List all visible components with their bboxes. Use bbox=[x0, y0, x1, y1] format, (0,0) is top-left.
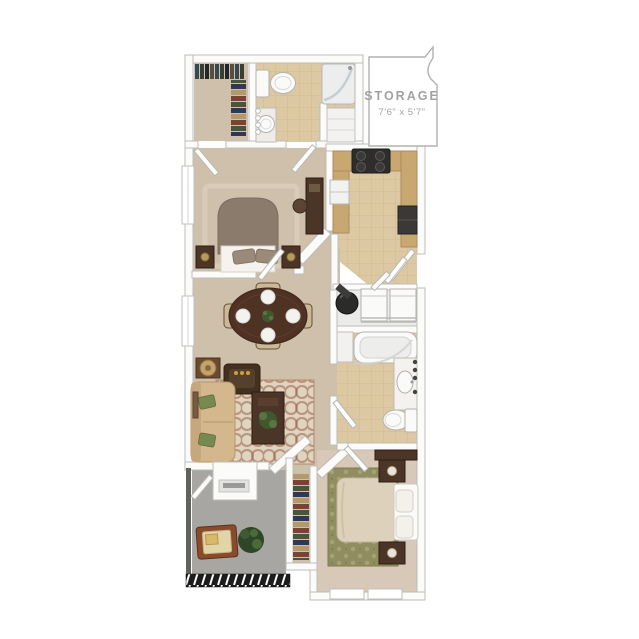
upper-right-wall bbox=[355, 63, 363, 144]
throw-pillow bbox=[198, 433, 216, 448]
entry-hall-wall bbox=[331, 234, 338, 290]
hanging-clothes bbox=[293, 474, 309, 560]
toilet bbox=[271, 73, 296, 94]
lounge-chair bbox=[196, 525, 238, 560]
right-wall-upper bbox=[417, 144, 425, 254]
top-wall bbox=[185, 55, 363, 63]
patio-side-rail bbox=[186, 468, 191, 576]
shower-head bbox=[348, 66, 352, 70]
storage-dimensions: 7'6" x 5'7" bbox=[378, 107, 425, 118]
floor-plan-image: STORAGE 7'6" x 5'7" bbox=[0, 0, 639, 639]
closet-bath-divider-wall bbox=[249, 63, 256, 143]
pillow bbox=[232, 249, 256, 265]
closet-2-bottom-wall bbox=[286, 563, 317, 570]
storage-label: STORAGE bbox=[364, 89, 440, 103]
fireplace bbox=[213, 462, 257, 500]
washer bbox=[361, 289, 387, 321]
bed-duvet bbox=[337, 478, 397, 542]
linen-shelf bbox=[337, 332, 353, 362]
wall-art bbox=[193, 392, 198, 418]
window bbox=[330, 589, 364, 599]
floor-plan: STORAGE 7'6" x 5'7" bbox=[0, 0, 639, 639]
window bbox=[368, 589, 402, 599]
bedroom-2-top-wall bbox=[348, 443, 417, 450]
dryer bbox=[390, 289, 416, 321]
right-wall-lower bbox=[417, 288, 425, 600]
toilet-tank bbox=[405, 409, 417, 432]
faucet bbox=[411, 381, 414, 384]
closet-2-left-wall bbox=[286, 458, 293, 570]
storage-room: STORAGE 7'6" x 5'7" bbox=[364, 47, 440, 146]
desk-chair bbox=[293, 199, 307, 213]
dresser bbox=[375, 450, 417, 460]
hanging-clothes bbox=[231, 80, 246, 136]
potted-plant bbox=[238, 527, 264, 553]
toilet-tank bbox=[256, 70, 269, 97]
linen-shelf bbox=[327, 108, 355, 142]
hanging-clothes bbox=[195, 64, 245, 79]
closet-2-right-wall bbox=[310, 466, 317, 592]
pillow bbox=[396, 490, 413, 512]
balcony-railing bbox=[186, 574, 290, 587]
pillow bbox=[396, 516, 413, 538]
